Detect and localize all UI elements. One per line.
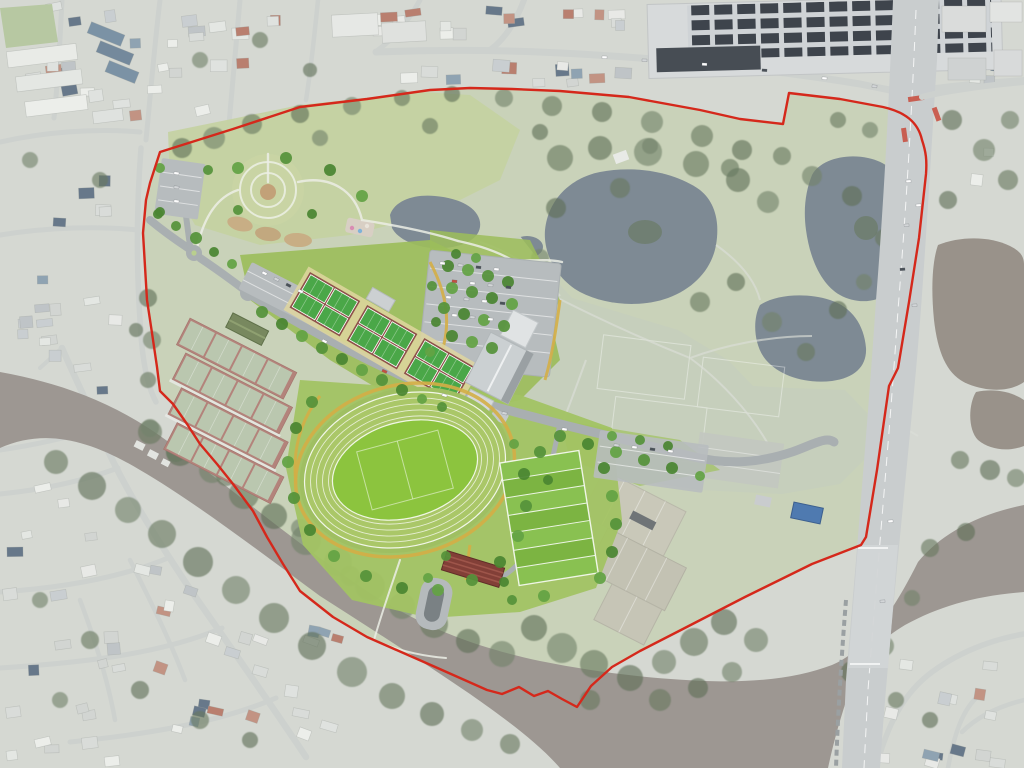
car	[446, 296, 451, 299]
tree-canopy-icon	[688, 678, 708, 698]
tree-canopy-icon	[680, 628, 708, 656]
house-roof	[78, 187, 94, 198]
tree-canopy-icon	[998, 170, 1018, 190]
tree-canopy-icon	[856, 274, 872, 290]
large-roof-building	[331, 13, 378, 37]
tree-canopy-icon	[542, 96, 562, 116]
tree-icon	[494, 556, 506, 568]
tree-icon	[594, 572, 606, 584]
tree-icon	[466, 336, 478, 348]
car	[488, 318, 493, 321]
house-roof	[147, 85, 162, 94]
tree-canopy-icon	[691, 125, 713, 147]
tree-icon	[543, 475, 553, 485]
tree-icon	[155, 207, 165, 217]
car	[888, 520, 893, 523]
house-roof	[446, 75, 461, 85]
tree-icon	[499, 577, 509, 587]
car	[762, 69, 767, 72]
car	[900, 268, 905, 271]
tree-icon	[663, 441, 673, 451]
aerial-map-stage	[0, 0, 1024, 768]
tree-canopy-icon	[973, 139, 995, 161]
tree-canopy-icon	[261, 503, 287, 529]
tree-icon	[666, 462, 678, 474]
tree-icon	[431, 317, 441, 327]
car	[452, 314, 457, 317]
tree-canopy-icon	[547, 145, 573, 171]
tree-icon	[638, 454, 650, 466]
tree-icon	[446, 282, 458, 294]
house-roof	[975, 749, 991, 761]
house-roof	[53, 218, 66, 227]
tree-canopy-icon	[722, 662, 742, 682]
house-roof	[557, 61, 569, 70]
house-roof	[44, 745, 59, 753]
house-roof	[20, 316, 34, 329]
tree-icon	[607, 431, 617, 441]
tree-icon	[296, 330, 308, 342]
tree-canopy-icon	[904, 590, 920, 606]
car	[452, 280, 457, 283]
tree-canopy-icon	[420, 702, 444, 726]
tree-canopy-icon	[252, 32, 268, 48]
tree-icon	[306, 396, 318, 408]
tree-icon	[446, 330, 458, 342]
car	[872, 85, 877, 88]
car	[488, 284, 493, 287]
house-roof	[284, 684, 298, 698]
tree-canopy-icon	[191, 711, 209, 729]
tree-canopy-icon	[489, 641, 515, 667]
house-roof	[129, 110, 141, 121]
tree-canopy-icon	[980, 460, 1000, 480]
tree-canopy-icon	[592, 102, 612, 122]
tree-icon	[520, 500, 532, 512]
house-roof	[486, 6, 503, 16]
tree-canopy-icon	[81, 631, 99, 649]
house-roof	[989, 758, 1005, 768]
house-roof	[400, 72, 417, 83]
car	[602, 56, 607, 59]
tree-icon	[438, 302, 450, 314]
tree-canopy-icon	[683, 151, 709, 177]
tree-canopy-icon	[888, 692, 904, 708]
small-sports-field	[0, 4, 58, 48]
house-roof	[104, 631, 119, 643]
tree-icon	[554, 430, 566, 442]
house-roof	[236, 58, 249, 69]
tree-icon	[256, 306, 268, 318]
house-roof	[68, 17, 81, 27]
tree-canopy-icon	[951, 451, 969, 469]
house-roof	[974, 688, 986, 700]
car	[650, 448, 655, 451]
tree-canopy-icon	[92, 172, 108, 188]
tree-icon	[280, 152, 292, 164]
tree-canopy-icon	[546, 198, 566, 218]
tree-icon	[376, 374, 388, 386]
tree-icon	[471, 253, 481, 263]
car	[482, 300, 487, 303]
tree-icon	[328, 550, 340, 562]
house-roof	[181, 15, 197, 28]
tree-canopy-icon	[727, 273, 745, 291]
car	[614, 444, 619, 447]
house-roof	[85, 532, 98, 541]
car	[880, 600, 885, 603]
tree-icon	[307, 209, 317, 219]
car	[506, 286, 511, 289]
house-roof	[608, 10, 625, 20]
tree-canopy-icon	[456, 629, 480, 653]
tree-canopy-icon	[141, 419, 159, 437]
tree-canopy-icon	[862, 122, 878, 138]
house-roof	[566, 78, 578, 87]
tree-icon	[336, 353, 348, 365]
car	[174, 172, 179, 175]
tree-canopy-icon	[337, 657, 367, 687]
tree-icon	[171, 221, 181, 231]
tree-canopy-icon	[298, 632, 326, 660]
tree-canopy-icon	[610, 178, 630, 198]
car	[912, 304, 917, 307]
car	[822, 77, 827, 80]
tree-canopy-icon	[500, 734, 520, 754]
house-roof	[615, 20, 624, 30]
house-roof	[589, 73, 605, 83]
tree-icon	[432, 584, 444, 596]
car	[458, 264, 463, 267]
tree-icon	[538, 590, 550, 602]
tree-canopy-icon	[547, 633, 577, 663]
tree-canopy-icon	[773, 147, 791, 165]
tree-canopy-icon	[379, 683, 405, 709]
house-roof	[169, 68, 182, 77]
house-roof	[5, 706, 21, 718]
tree-canopy-icon	[921, 539, 939, 557]
lake-island	[628, 220, 662, 244]
tree-canopy-icon	[495, 89, 513, 107]
tree-icon	[582, 438, 594, 450]
house-roof	[107, 642, 121, 655]
tree-icon	[610, 518, 622, 530]
large-roof-building	[382, 21, 427, 43]
house-roof	[97, 386, 108, 394]
tree-canopy-icon	[312, 130, 328, 146]
tree-icon	[462, 264, 474, 276]
house-roof	[970, 174, 983, 187]
house-roof	[104, 10, 116, 23]
car	[476, 266, 481, 269]
tree-icon	[534, 446, 546, 458]
house-roof	[983, 661, 998, 671]
tree-icon	[190, 232, 202, 244]
house-roof	[104, 756, 120, 767]
house-roof	[615, 67, 632, 79]
tree-icon	[695, 471, 705, 481]
tree-icon	[466, 574, 478, 586]
house-roof	[34, 304, 49, 313]
tree-canopy-icon	[922, 712, 938, 728]
house-roof	[81, 736, 98, 749]
car	[174, 200, 179, 203]
house-roof	[7, 547, 23, 557]
tree-canopy-icon	[242, 732, 258, 748]
tree-icon	[442, 260, 454, 272]
tree-canopy-icon	[52, 692, 68, 708]
tree-canopy-icon	[461, 719, 483, 741]
tree-icon	[276, 318, 288, 330]
tree-canopy-icon	[757, 191, 779, 213]
house-roof	[97, 659, 108, 669]
house-roof	[50, 303, 62, 316]
tree-canopy-icon	[830, 112, 846, 128]
tree-canopy-icon	[641, 111, 663, 133]
tree-canopy-icon	[222, 576, 250, 604]
tree-icon	[423, 573, 433, 583]
car	[500, 302, 505, 305]
house-roof	[54, 639, 71, 650]
house-roof	[149, 565, 162, 575]
house-roof	[21, 530, 32, 539]
tree-icon	[427, 281, 437, 291]
tree-icon	[290, 422, 302, 434]
tree-icon	[506, 298, 518, 310]
house-roof	[880, 753, 890, 763]
house-roof	[88, 89, 104, 103]
house-roof	[899, 659, 913, 670]
house-roof	[58, 498, 70, 508]
tree-icon	[606, 546, 618, 558]
tree-canopy-icon	[303, 63, 317, 77]
tree-icon	[396, 582, 408, 594]
tree-icon	[486, 342, 498, 354]
lake-island	[854, 216, 878, 240]
car	[642, 59, 647, 62]
tree-canopy-icon	[652, 650, 676, 674]
house-roof	[164, 600, 175, 612]
house-roof	[167, 40, 177, 48]
car	[470, 316, 475, 319]
tree-canopy-icon	[22, 152, 38, 168]
tree-canopy-icon	[131, 681, 149, 699]
aerial-site-plan-map	[0, 0, 1024, 768]
car	[470, 282, 475, 285]
tree-icon	[482, 270, 494, 282]
tree-icon	[232, 162, 244, 174]
tree-icon	[512, 530, 524, 542]
tree-canopy-icon	[588, 136, 612, 160]
tree-icon	[304, 524, 316, 536]
house-roof	[2, 588, 17, 601]
tree-icon	[498, 320, 510, 332]
tree-icon	[509, 439, 519, 449]
tree-canopy-icon	[183, 547, 213, 577]
tree-canopy-icon	[942, 110, 962, 130]
tree-icon	[396, 384, 408, 396]
car	[916, 204, 921, 207]
house-roof	[158, 63, 169, 72]
house-roof	[18, 329, 29, 339]
tree-canopy-icon	[1001, 111, 1019, 129]
house-roof	[984, 710, 996, 720]
tree-canopy-icon	[129, 323, 143, 337]
tree-canopy-icon	[762, 312, 782, 332]
tree-icon	[324, 164, 336, 176]
house-roof	[37, 276, 48, 284]
tree-canopy-icon	[78, 472, 106, 500]
tree-canopy-icon	[532, 124, 548, 140]
house-roof	[130, 38, 141, 48]
house-roof	[236, 26, 250, 36]
tree-icon	[356, 190, 368, 202]
house-roof	[210, 60, 227, 72]
shopping-centre-dark-roof	[656, 46, 761, 73]
house-roof	[209, 21, 227, 33]
tree-canopy-icon	[642, 138, 658, 154]
tree-icon	[233, 205, 243, 215]
house-roof	[440, 21, 451, 31]
house-roof	[492, 59, 510, 72]
tree-icon	[227, 259, 237, 269]
house-roof	[571, 69, 582, 79]
tree-canopy-icon	[192, 52, 208, 68]
tree-canopy-icon	[721, 159, 739, 177]
house-roof	[938, 692, 952, 706]
tree-canopy-icon	[732, 140, 752, 160]
house-roof	[574, 9, 584, 18]
tree-icon	[417, 394, 427, 404]
tree-icon	[507, 595, 517, 605]
car	[632, 446, 637, 449]
tree-icon	[518, 468, 530, 480]
tree-canopy-icon	[44, 450, 68, 474]
tree-icon	[356, 364, 368, 376]
tree-icon	[466, 286, 478, 298]
house-roof	[421, 66, 438, 78]
tree-icon	[610, 446, 622, 458]
car	[668, 450, 673, 453]
tree-canopy-icon	[422, 118, 438, 134]
tree-canopy-icon	[148, 520, 176, 548]
car	[904, 224, 909, 227]
car	[494, 268, 499, 271]
tree-icon	[203, 165, 213, 175]
tree-canopy-icon	[802, 166, 822, 186]
house-roof	[36, 318, 53, 327]
house-roof	[99, 206, 112, 217]
house-roof	[563, 10, 573, 19]
tree-icon	[425, 347, 435, 357]
house-roof	[504, 14, 515, 24]
tree-canopy-icon	[842, 186, 862, 206]
house-roof	[28, 665, 39, 676]
house-roof	[49, 350, 61, 361]
house-roof	[267, 16, 279, 26]
tree-canopy-icon	[259, 603, 289, 633]
car	[440, 262, 445, 265]
house-roof	[113, 99, 131, 109]
tree-canopy-icon	[797, 343, 815, 361]
tree-icon	[458, 308, 470, 320]
tree-icon	[486, 292, 498, 304]
tree-icon	[209, 247, 219, 257]
house-roof	[189, 32, 204, 41]
house-roof	[109, 315, 122, 326]
house-roof	[380, 12, 397, 22]
tree-canopy-icon	[829, 301, 847, 319]
house-roof	[453, 28, 466, 40]
tree-icon	[606, 490, 618, 502]
tree-icon	[441, 551, 451, 561]
tree-canopy-icon	[690, 292, 710, 312]
car	[464, 298, 469, 301]
tree-icon	[598, 462, 610, 474]
tree-canopy-icon	[649, 689, 671, 711]
tree-canopy-icon	[939, 191, 957, 209]
tree-icon	[437, 402, 447, 412]
tree-canopy-icon	[115, 497, 141, 523]
house-roof	[6, 750, 18, 761]
tree-canopy-icon	[744, 628, 768, 652]
house-roof	[595, 10, 604, 20]
car	[702, 63, 707, 66]
tree-canopy-icon	[617, 665, 643, 691]
car	[174, 186, 179, 189]
tree-icon	[288, 492, 300, 504]
tree-icon	[360, 570, 372, 582]
tree-canopy-icon	[957, 523, 975, 541]
tree-icon	[451, 249, 461, 259]
tree-icon	[635, 435, 645, 445]
tree-icon	[282, 456, 294, 468]
tree-canopy-icon	[521, 615, 547, 641]
tree-canopy-icon	[140, 372, 156, 388]
house-roof	[533, 78, 545, 87]
car	[906, 180, 911, 183]
house-roof	[39, 338, 50, 346]
tree-canopy-icon	[32, 592, 48, 608]
